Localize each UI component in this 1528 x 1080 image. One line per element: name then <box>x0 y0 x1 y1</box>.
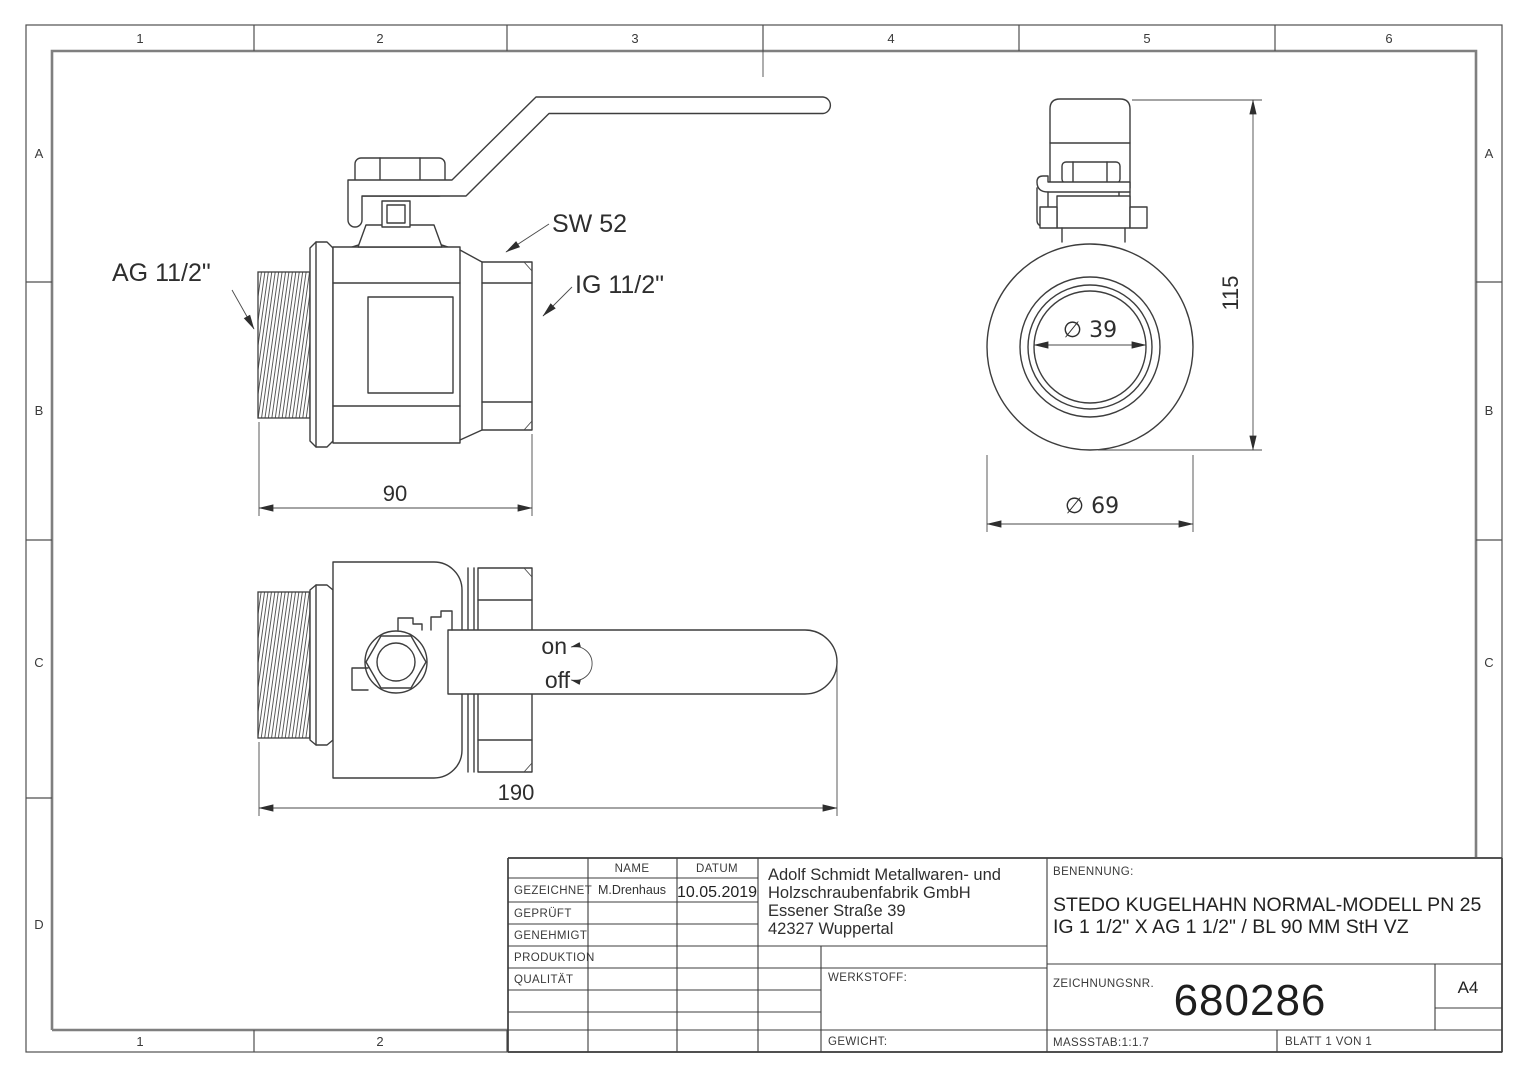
grid-col-label: 2 <box>376 31 383 46</box>
side-view: ∅ 39 115 ∅ 69 <box>987 99 1262 532</box>
label-ag: AG 11/2" <box>112 259 211 287</box>
drawn-by-name: M.Drenhaus <box>598 883 666 897</box>
male-thread-top <box>258 592 310 738</box>
company-line: Essener Straße 39 <box>768 902 906 920</box>
company-line: Holzschraubenfabrik GmbH <box>768 884 971 902</box>
inner-frame <box>52 51 1476 1030</box>
dim-69-text: ∅ 69 <box>1065 494 1119 519</box>
part-title-line1: STEDO KUGELHAHN NORMAL-MODELL PN 25 <box>1053 894 1482 916</box>
benennung-label: BENENNUNG: <box>1053 866 1134 878</box>
valve-body <box>333 247 460 443</box>
label-sw: SW 52 <box>552 210 627 238</box>
grid-row-label-right: C <box>1484 655 1493 670</box>
male-thread <box>258 272 310 418</box>
stem-circle <box>377 643 415 681</box>
leader-sw <box>506 224 549 252</box>
grid-row-label: B <box>35 403 44 418</box>
label-off: off <box>545 667 571 693</box>
grid-row-label-right: A <box>1485 146 1494 161</box>
lever-top <box>448 630 837 694</box>
grid-row-label: C <box>34 655 43 670</box>
dim-bore-text: ∅ 39 <box>1063 318 1117 343</box>
side-stem-nut <box>1062 162 1120 183</box>
grid-col-label: 1 <box>136 31 143 46</box>
massstab-label: MASSSTAB:1:1.7 <box>1053 1037 1149 1049</box>
row-label-geprueft: GEPRÜFT <box>514 908 572 920</box>
leader-ag <box>232 290 254 329</box>
zeichnungsnr-label: ZEICHNUNGSNR. <box>1053 978 1154 990</box>
label-ig: IG 11/2" <box>575 271 664 299</box>
col-header-datum: DATUM <box>696 863 738 875</box>
blatt-label: BLATT 1 VON 1 <box>1285 1036 1372 1048</box>
drawing-sheet: 1 2 3 4 5 6 1 2 A B C D A B C <box>0 0 1528 1080</box>
grid-col-label-bottom: 1 <box>136 1034 143 1049</box>
row-label-produktion: PRODUKTION <box>514 952 595 964</box>
hex-transition <box>460 250 482 440</box>
title-block: NAME DATUM GEZEICHNET M.Drenhaus 10.05.2… <box>508 858 1502 1052</box>
grid-row-label-right: B <box>1485 403 1494 418</box>
grid-col-label: 4 <box>887 31 894 46</box>
row-label-gezeichnet: GEZEICHNET <box>514 885 592 897</box>
front-view: AG 11/2" SW 52 IG 11/2" 90 <box>112 97 830 516</box>
part-title-line2: IG 1 1/2" X AG 1 1/2" / BL 90 MM StH VZ <box>1053 916 1409 938</box>
label-on: on <box>541 633 567 659</box>
row-label-genehmigt: GENEHMIGT <box>514 930 587 942</box>
grid-col-label-bottom: 2 <box>376 1034 383 1049</box>
female-hex <box>482 262 532 430</box>
body-circle-outer <box>987 244 1193 450</box>
technical-drawing: 1 2 3 4 5 6 1 2 A B C D A B C <box>0 0 1528 1080</box>
company-line: 42327 Wuppertal <box>768 920 893 938</box>
grid-row-label: A <box>35 146 44 161</box>
dim-190-text: 190 <box>498 780 535 805</box>
grid-col-label: 5 <box>1143 31 1150 46</box>
werkstoff-label: WERKSTOFF: <box>828 972 907 984</box>
grid-row-label: D <box>34 917 43 932</box>
drawn-date: 10.05.2019 <box>677 884 757 901</box>
stem-tab-right <box>1130 207 1147 228</box>
gewicht-label: GEWICHT: <box>828 1036 887 1048</box>
grid-row-ticks <box>26 282 1502 798</box>
grid-col-label: 6 <box>1385 31 1392 46</box>
format-label: A4 <box>1458 978 1479 997</box>
col-header-name: NAME <box>615 863 650 875</box>
drawing-number: 680286 <box>1174 976 1327 1025</box>
company-line: Adolf Schmidt Metallwaren- und <box>768 866 1001 884</box>
leader-ig <box>543 287 572 316</box>
stem-housing <box>1057 196 1130 228</box>
dim-115-text: 115 <box>1218 275 1243 310</box>
row-label-qualitaet: QUALITÄT <box>514 974 573 986</box>
stem-tab-left <box>1040 207 1057 228</box>
dim-90-text: 90 <box>383 481 407 506</box>
grid-col-label: 3 <box>631 31 638 46</box>
packing-gland <box>358 225 442 247</box>
top-view: on off 190 <box>258 562 837 816</box>
collar-top <box>310 585 333 745</box>
collar <box>310 242 333 447</box>
